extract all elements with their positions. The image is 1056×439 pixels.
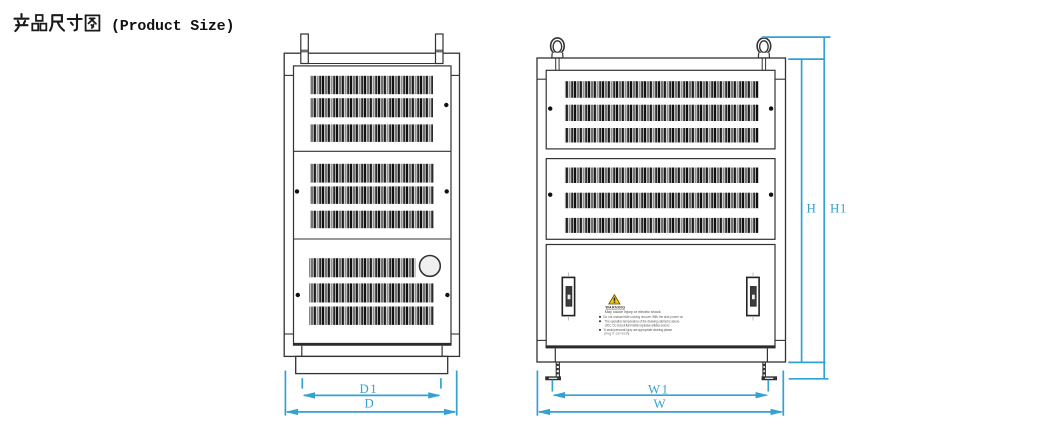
svg-text:H: H [807, 200, 816, 215]
svg-text:D1: D1 [360, 382, 379, 396]
svg-text:(Product Size): (Product Size) [111, 18, 235, 35]
svg-text:D: D [365, 397, 374, 411]
svg-text:W: W [654, 397, 667, 411]
svg-text:May cause injury or electric s: May cause injury or electric shock [605, 309, 661, 314]
svg-text:H1: H1 [830, 200, 847, 215]
svg-text:100C. Do not put flammable exp: 100C. Do not put flammable explosive art… [604, 323, 669, 327]
svg-text:plug it correctly: plug it correctly [604, 332, 629, 336]
svg-text:W1: W1 [648, 383, 669, 397]
svg-text:Do not unassemble locking reco: Do not unassemble locking recover With t… [603, 315, 683, 319]
